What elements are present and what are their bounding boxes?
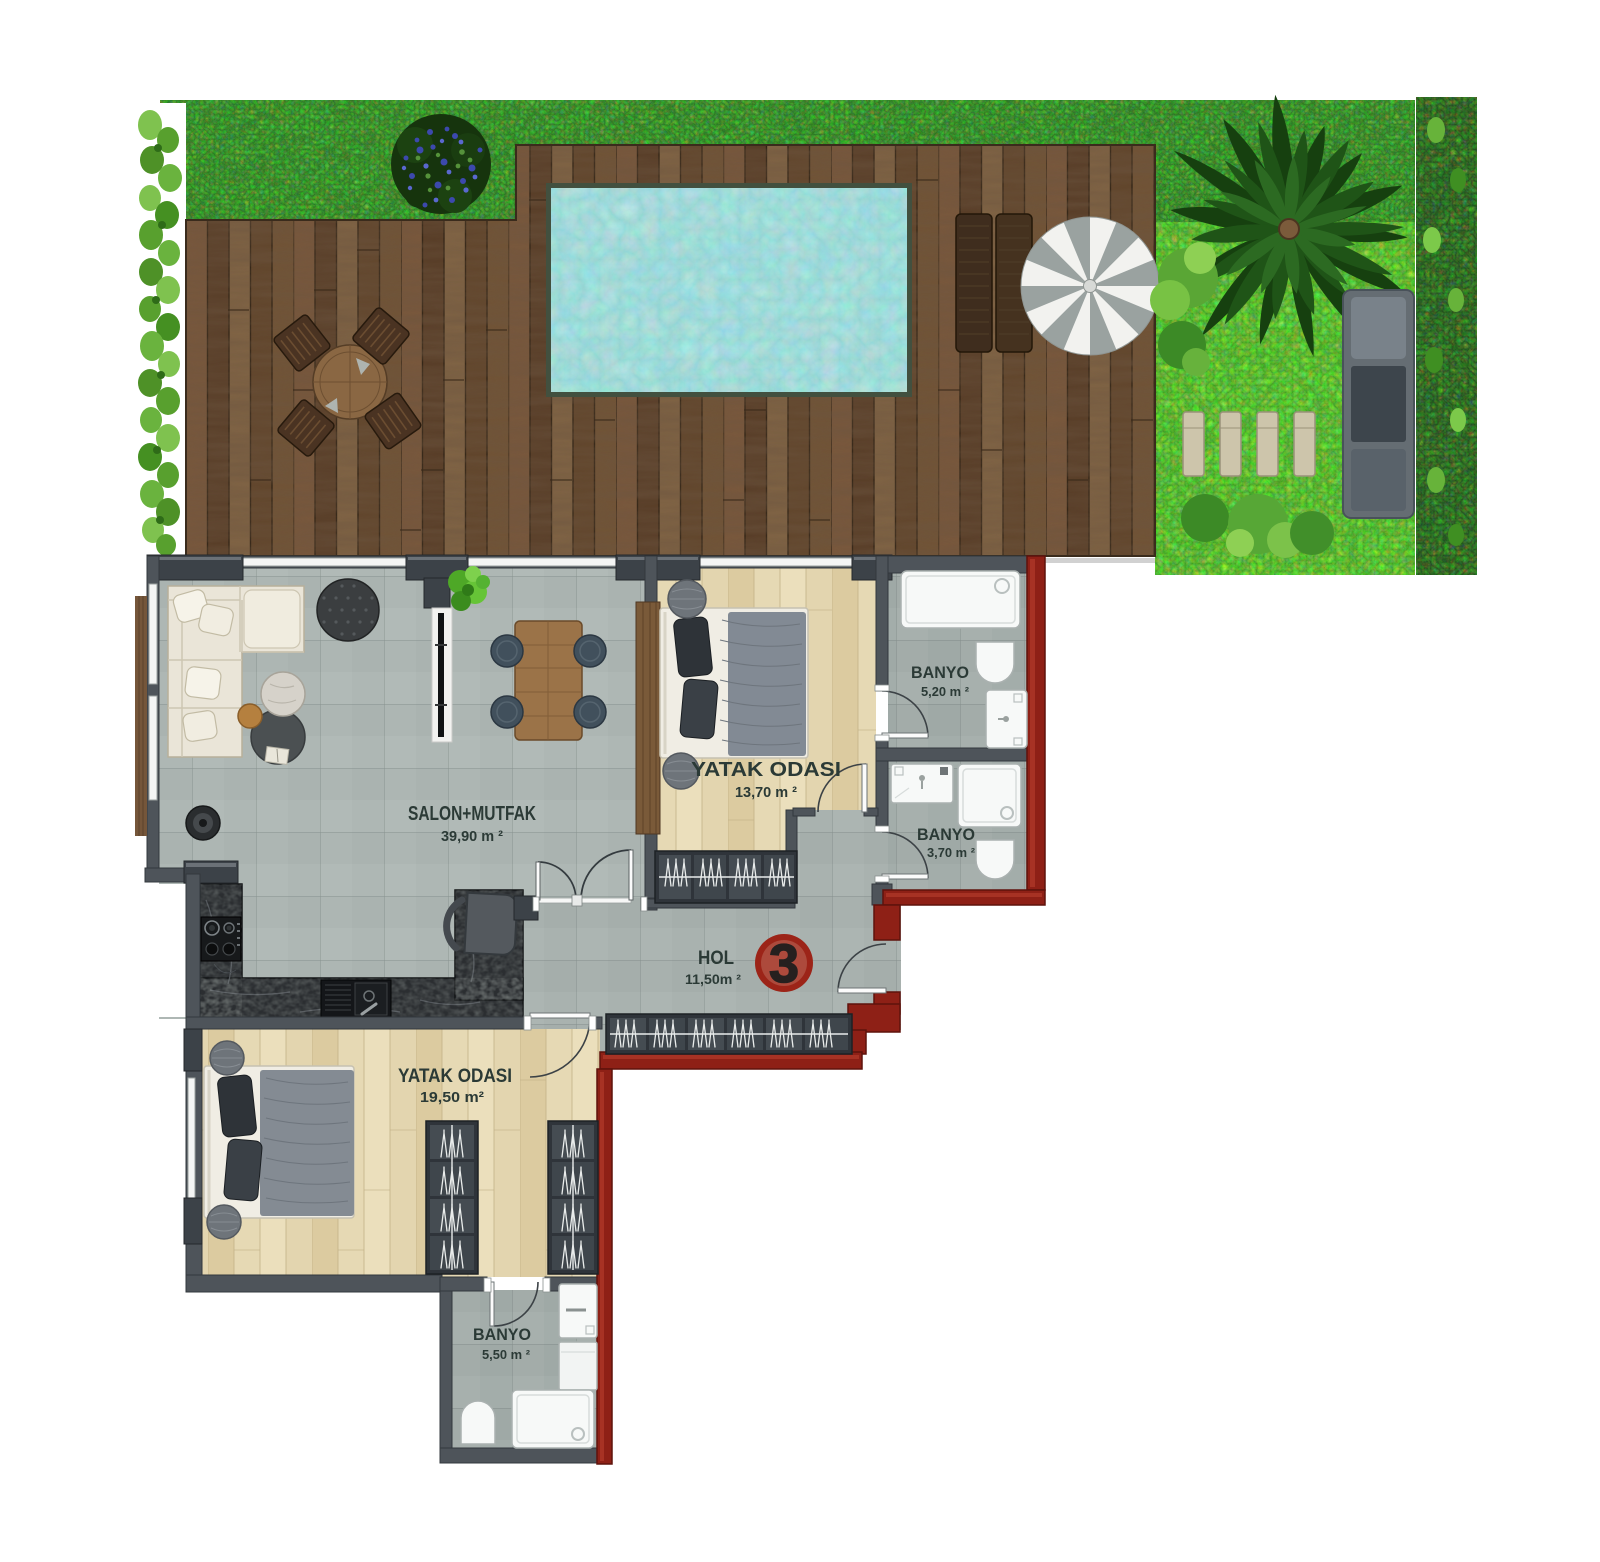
svg-text:BANYO: BANYO: [473, 1325, 531, 1344]
svg-text:YATAK ODASI: YATAK ODASI: [691, 759, 841, 781]
svg-text:39,90 m ²: 39,90 m ²: [441, 828, 503, 845]
svg-text:5,50 m ²: 5,50 m ²: [482, 1347, 531, 1362]
svg-text:19,50 m²: 19,50 m²: [420, 1089, 484, 1106]
svg-text:SALON+MUTFAK: SALON+MUTFAK: [408, 803, 536, 825]
svg-text:11,50m ²: 11,50m ²: [685, 971, 741, 987]
svg-text:BANYO: BANYO: [917, 825, 975, 844]
svg-text:3,70 m ²: 3,70 m ²: [927, 845, 976, 860]
svg-text:3: 3: [769, 934, 799, 994]
svg-text:BANYO: BANYO: [911, 663, 969, 682]
svg-text:13,70 m ²: 13,70 m ²: [735, 784, 797, 801]
svg-text:5,20 m ²: 5,20 m ²: [921, 684, 970, 699]
svg-text:YATAK ODASI: YATAK ODASI: [398, 1066, 512, 1087]
svg-text:HOL: HOL: [698, 948, 734, 969]
